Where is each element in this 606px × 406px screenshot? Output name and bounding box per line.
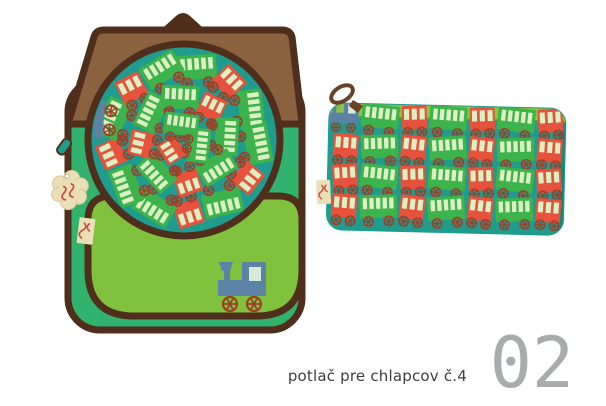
backpack-illustration (50, 10, 310, 340)
side-label (76, 217, 95, 245)
tag-hole (64, 174, 69, 179)
sheet-number: 02 (490, 328, 574, 398)
product-sheet: potlač pre chlapcov č.4 02 (0, 0, 606, 406)
case-side-label (316, 180, 331, 205)
caption-label: potlač pre chlapcov č.4 (288, 367, 467, 385)
pencil-case-illustration (315, 80, 575, 250)
